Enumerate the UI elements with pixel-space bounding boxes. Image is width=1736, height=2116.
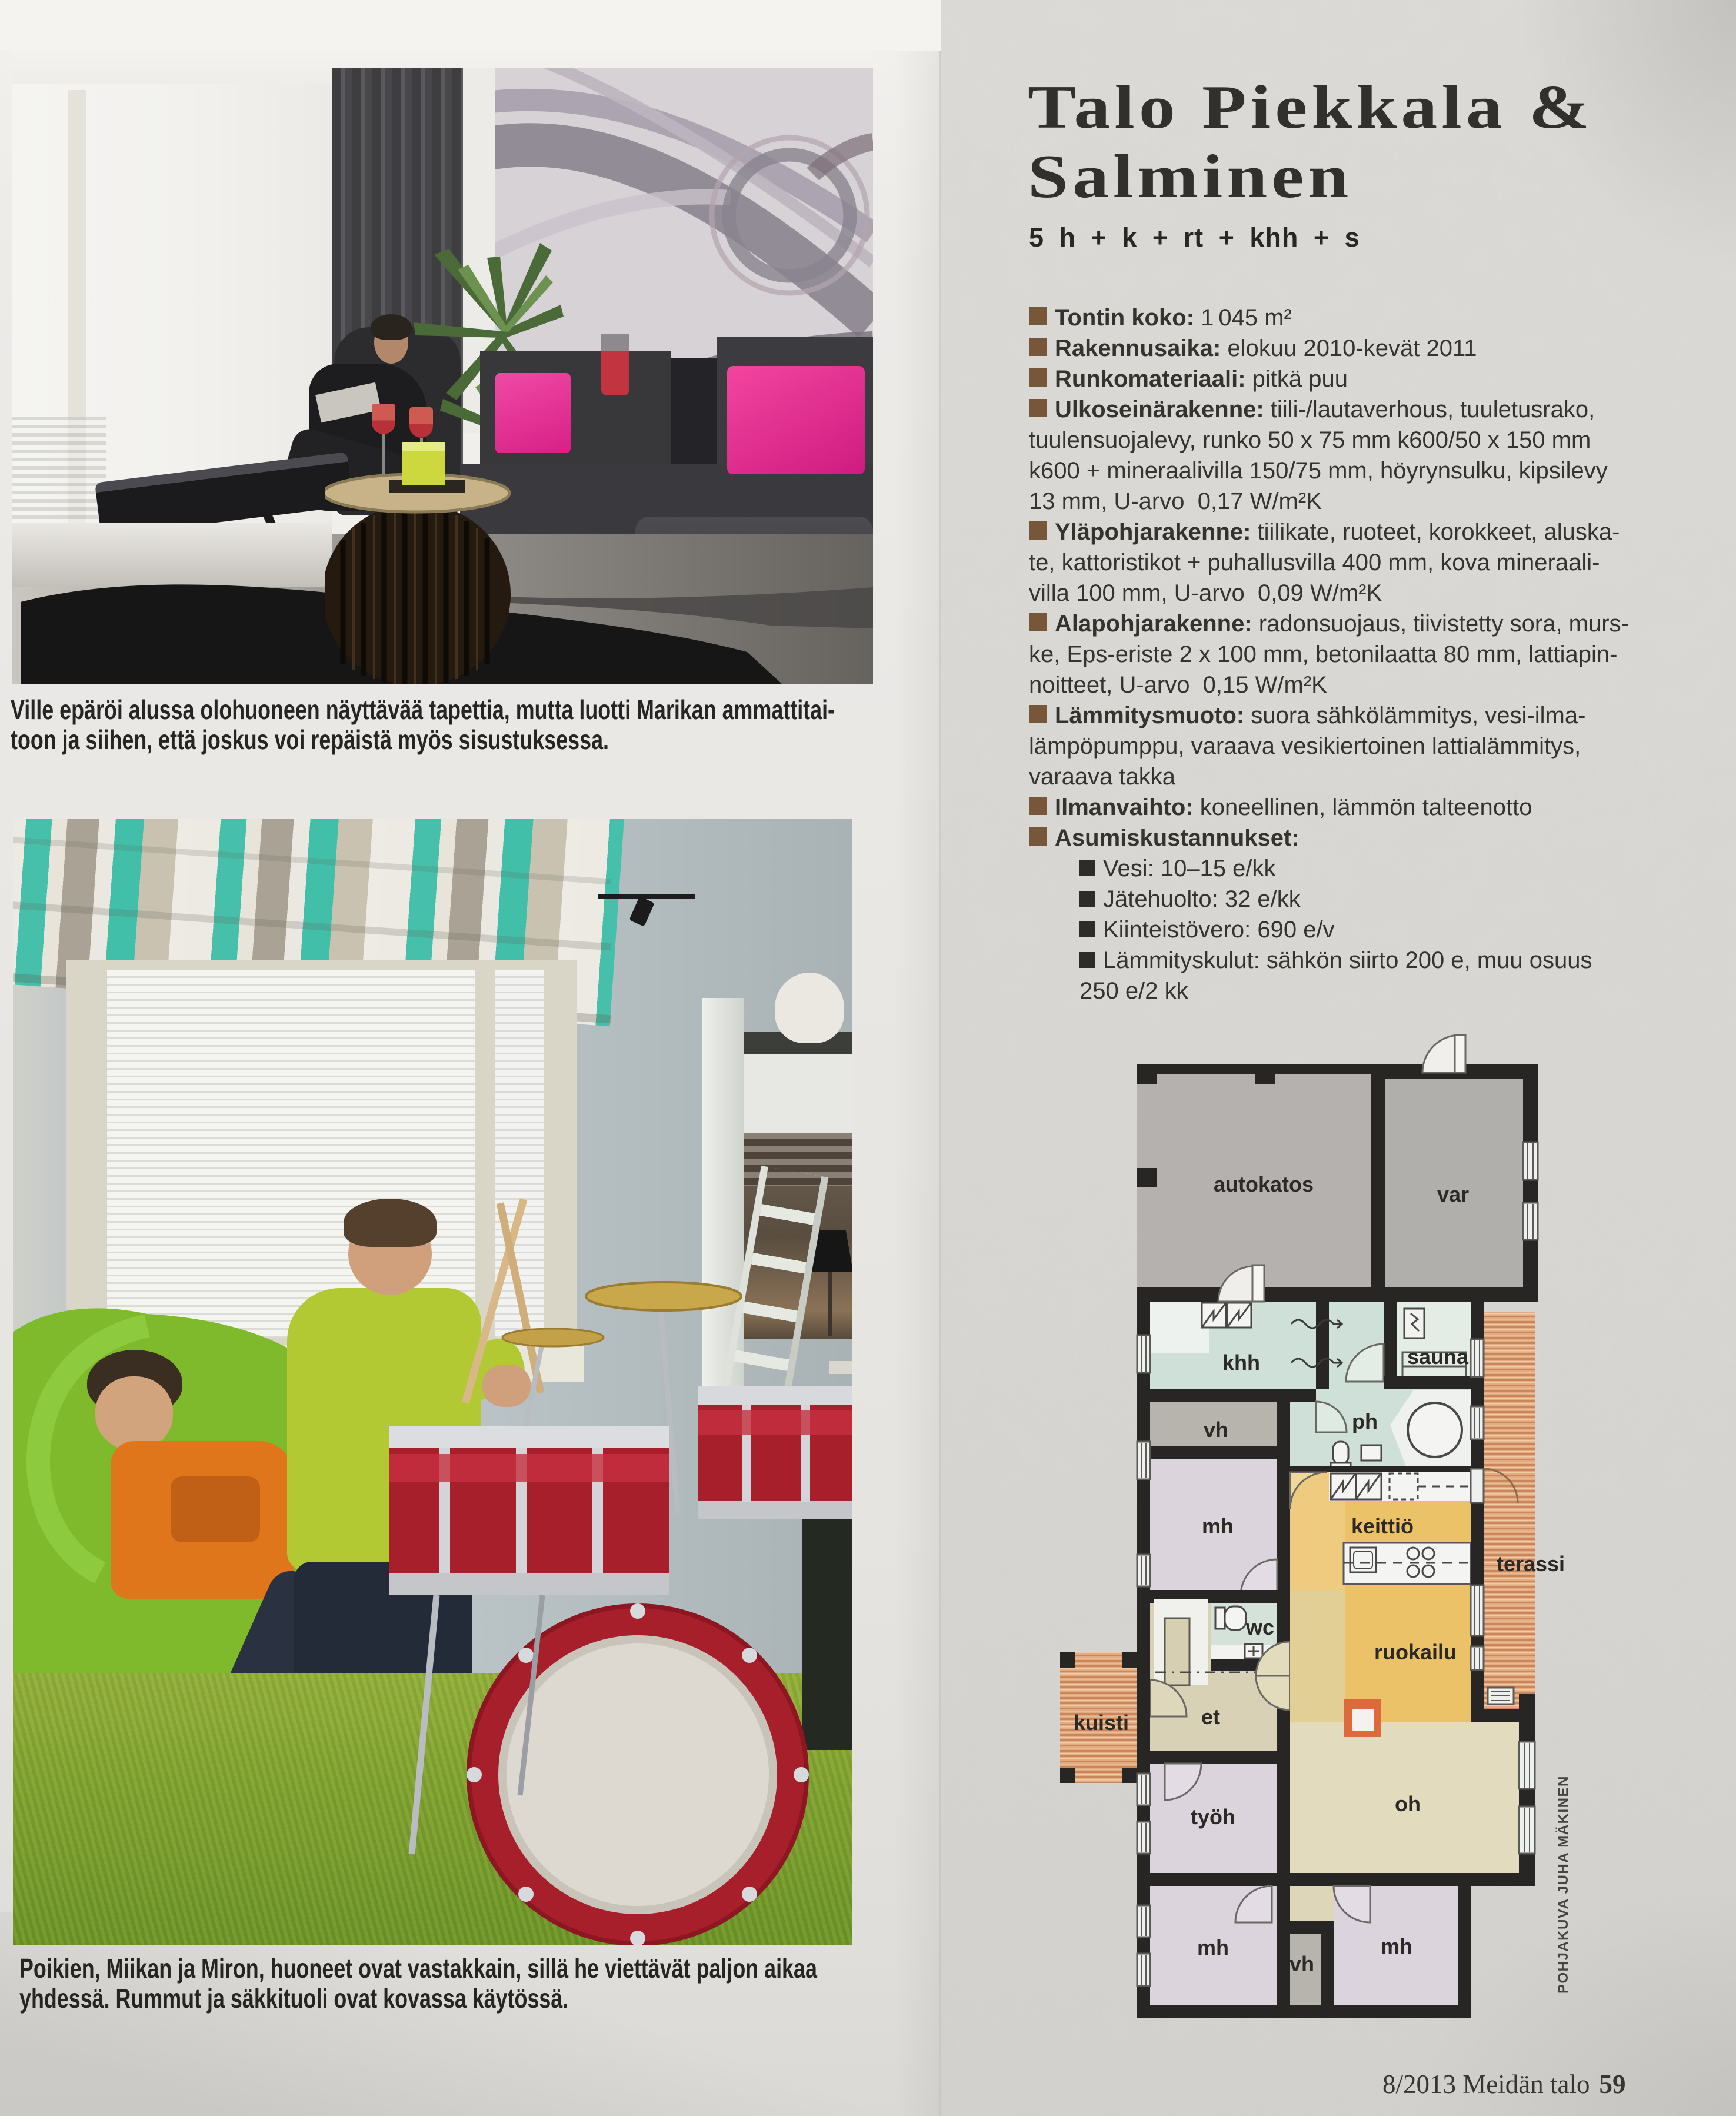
svg-text:terassi: terassi [1497, 1552, 1565, 1576]
svg-text:kuisti: kuisti [1074, 1711, 1129, 1735]
svg-text:keittiö: keittiö [1351, 1514, 1414, 1538]
svg-text:mh: mh [1197, 1935, 1229, 1959]
svg-text:mh: mh [1381, 1934, 1412, 1958]
svg-text:vh: vh [1289, 1952, 1314, 1976]
svg-text:khh: khh [1222, 1350, 1260, 1375]
svg-text:sauna: sauna [1407, 1345, 1469, 1369]
svg-text:ph: ph [1352, 1409, 1378, 1433]
svg-text:työh: työh [1191, 1805, 1235, 1829]
svg-text:vh: vh [1204, 1418, 1228, 1442]
svg-text:wc: wc [1245, 1615, 1274, 1639]
svg-text:mh: mh [1202, 1514, 1234, 1538]
svg-text:var: var [1437, 1182, 1469, 1206]
svg-text:oh: oh [1395, 1792, 1421, 1816]
svg-text:et: et [1201, 1705, 1220, 1729]
svg-text:autokatos: autokatos [1214, 1172, 1314, 1196]
svg-text:ruokailu: ruokailu [1374, 1640, 1457, 1664]
